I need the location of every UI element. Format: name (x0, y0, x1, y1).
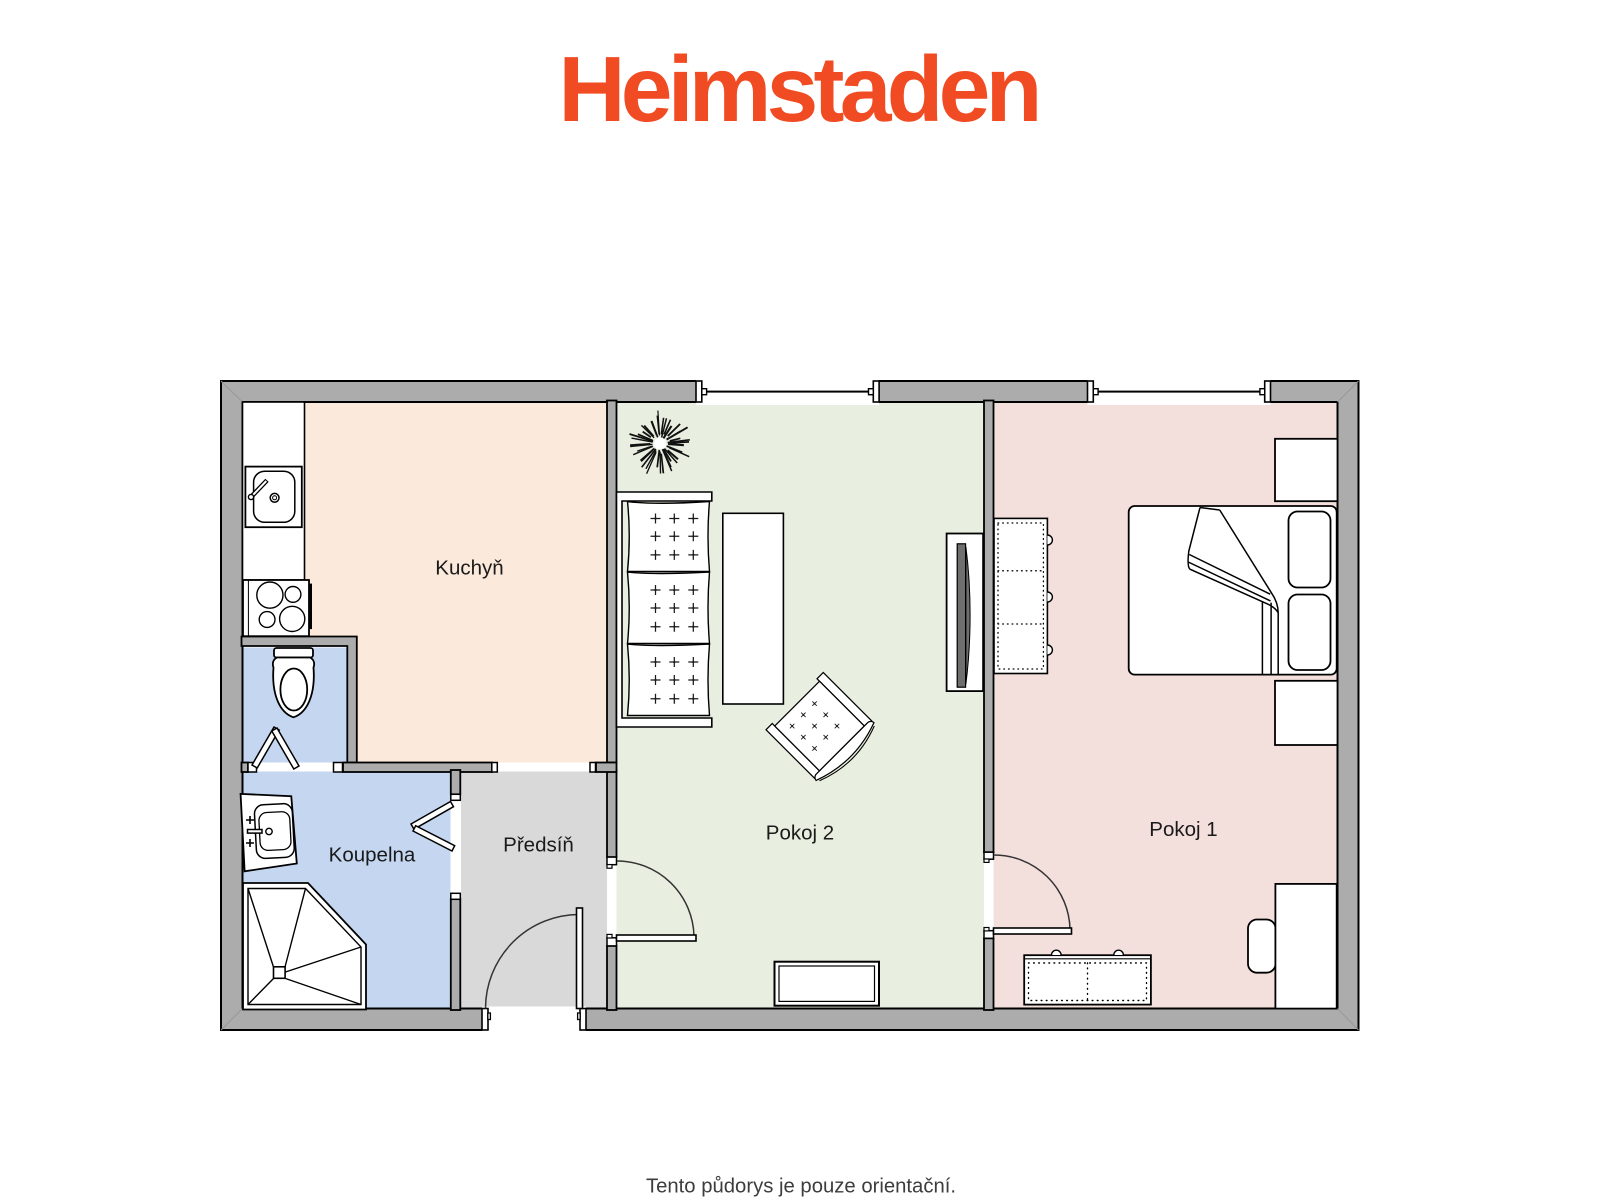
svg-text:Koupelna: Koupelna (329, 844, 416, 867)
svg-text:Tento půdorys je pouze orienta: Tento půdorys je pouze orientační. (646, 1176, 956, 1198)
svg-text:Heimstaden: Heimstaden (558, 37, 1037, 141)
svg-text:Pokoj 1: Pokoj 1 (1149, 818, 1217, 841)
svg-text:Předsíň: Předsíň (503, 834, 574, 857)
svg-text:Kuchyň: Kuchyň (435, 557, 503, 580)
svg-text:Pokoj 2: Pokoj 2 (766, 822, 834, 845)
